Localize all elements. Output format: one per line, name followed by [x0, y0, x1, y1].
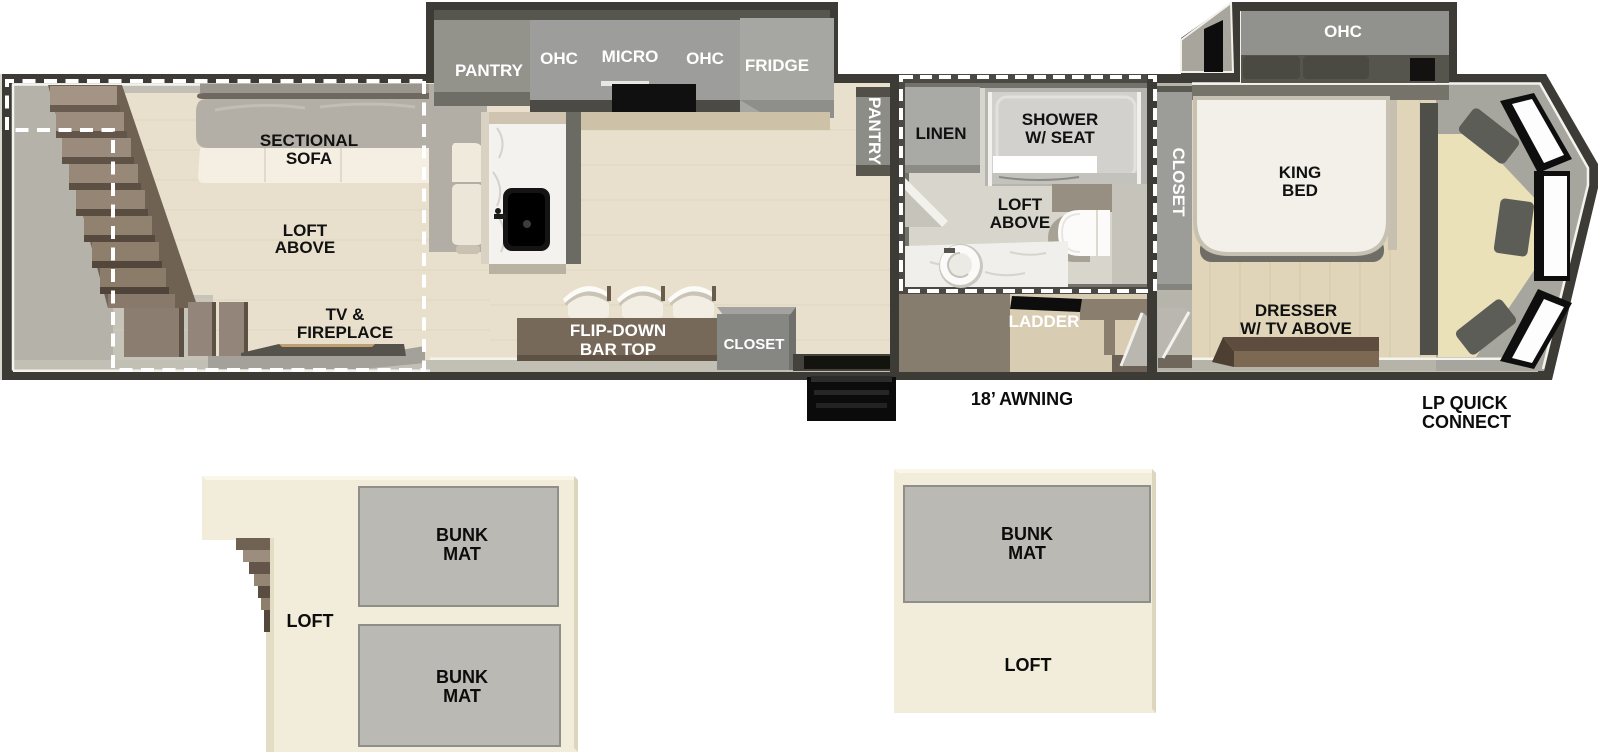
svg-text:BUNK: BUNK — [436, 525, 488, 545]
svg-text:MAT: MAT — [1008, 543, 1046, 563]
svg-text:OHC: OHC — [1324, 22, 1362, 41]
svg-text:BUNK: BUNK — [1001, 524, 1053, 544]
svg-text:SOFA: SOFA — [286, 149, 332, 168]
svg-text:CLOSET: CLOSET — [724, 336, 785, 353]
svg-text:ABOVE: ABOVE — [990, 213, 1050, 232]
svg-text:FRIDGE: FRIDGE — [745, 56, 809, 75]
svg-text:LINEN: LINEN — [916, 124, 967, 143]
svg-text:SHOWER: SHOWER — [1022, 110, 1099, 129]
svg-text:FLIP-DOWN: FLIP-DOWN — [570, 321, 666, 340]
svg-text:OHC: OHC — [686, 49, 724, 68]
svg-text:ABOVE: ABOVE — [275, 238, 335, 257]
svg-text:TV &: TV & — [326, 305, 365, 324]
svg-text:18’ AWNING: 18’ AWNING — [971, 389, 1073, 409]
svg-text:MAT: MAT — [443, 544, 481, 564]
svg-text:LADDER: LADDER — [1009, 312, 1080, 331]
svg-text:BAR TOP: BAR TOP — [580, 340, 656, 359]
svg-text:FIREPLACE: FIREPLACE — [297, 323, 393, 342]
svg-text:PANTRY: PANTRY — [865, 97, 884, 166]
svg-text:MAT: MAT — [443, 686, 481, 706]
svg-text:CLOSET: CLOSET — [1169, 148, 1188, 218]
svg-text:OHC: OHC — [540, 49, 578, 68]
svg-text:CONNECT: CONNECT — [1422, 412, 1511, 432]
svg-text:MICRO: MICRO — [602, 47, 659, 66]
svg-text:LOFT: LOFT — [998, 195, 1043, 214]
svg-text:BED: BED — [1282, 181, 1318, 200]
svg-text:LOFT: LOFT — [1005, 655, 1052, 675]
svg-text:W/ TV ABOVE: W/ TV ABOVE — [1240, 319, 1352, 338]
svg-text:BUNK: BUNK — [436, 667, 488, 687]
svg-text:PANTRY: PANTRY — [455, 61, 524, 80]
svg-text:LOFT: LOFT — [287, 611, 334, 631]
svg-text:DRESSER: DRESSER — [1255, 301, 1337, 320]
svg-text:LP QUICK: LP QUICK — [1422, 393, 1508, 413]
svg-text:W/ SEAT: W/ SEAT — [1025, 128, 1095, 147]
svg-text:SECTIONAL: SECTIONAL — [260, 131, 358, 150]
svg-text:KING: KING — [1279, 163, 1322, 182]
